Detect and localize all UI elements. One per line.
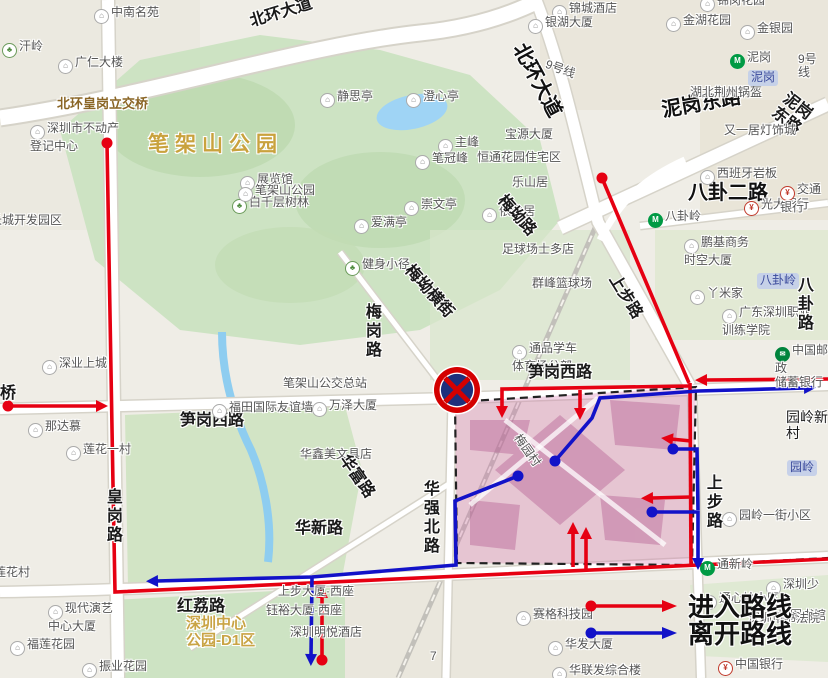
legend-leave-row: 离开路线: [583, 619, 792, 646]
city-blocks: [540, 0, 828, 110]
route-leave-start-dot: [668, 444, 679, 455]
traffic-map[interactable]: ⌂中南名苑♣汗岭⌂广仁大楼北环皇岗立交桥⌂深圳市不动产 登记中心长城开发园区⌂展…: [0, 0, 828, 678]
route-enter-line: [671, 439, 691, 441]
bagualing-blocks: [655, 230, 828, 340]
route-enter-line: [651, 497, 691, 498]
terrain-layer: [0, 0, 828, 678]
route-leave-start-dot: [513, 471, 524, 482]
route-enter-line: [705, 379, 828, 380]
route-enter-start-dot: [597, 173, 608, 184]
route-enter-start-dot: [317, 655, 328, 666]
route-enter-line: [690, 383, 691, 566]
route-leave-start-dot: [550, 456, 561, 467]
enter-route-arrow-icon: [583, 598, 679, 614]
route-enter-start-dot: [3, 401, 14, 412]
green-area: [430, 230, 630, 380]
route-enter-start-dot: [102, 138, 113, 149]
leave-route-arrow-icon: [583, 625, 679, 641]
route-legend: 进入路线 离开路线: [583, 592, 792, 646]
route-leave-start-dot: [647, 507, 658, 518]
park-woods: [215, 227, 365, 303]
map-canvas: [0, 0, 828, 678]
no-entry-sign: [433, 366, 482, 415]
route-leave-line: [311, 578, 312, 656]
legend-leave-label: 离开路线: [688, 614, 792, 651]
